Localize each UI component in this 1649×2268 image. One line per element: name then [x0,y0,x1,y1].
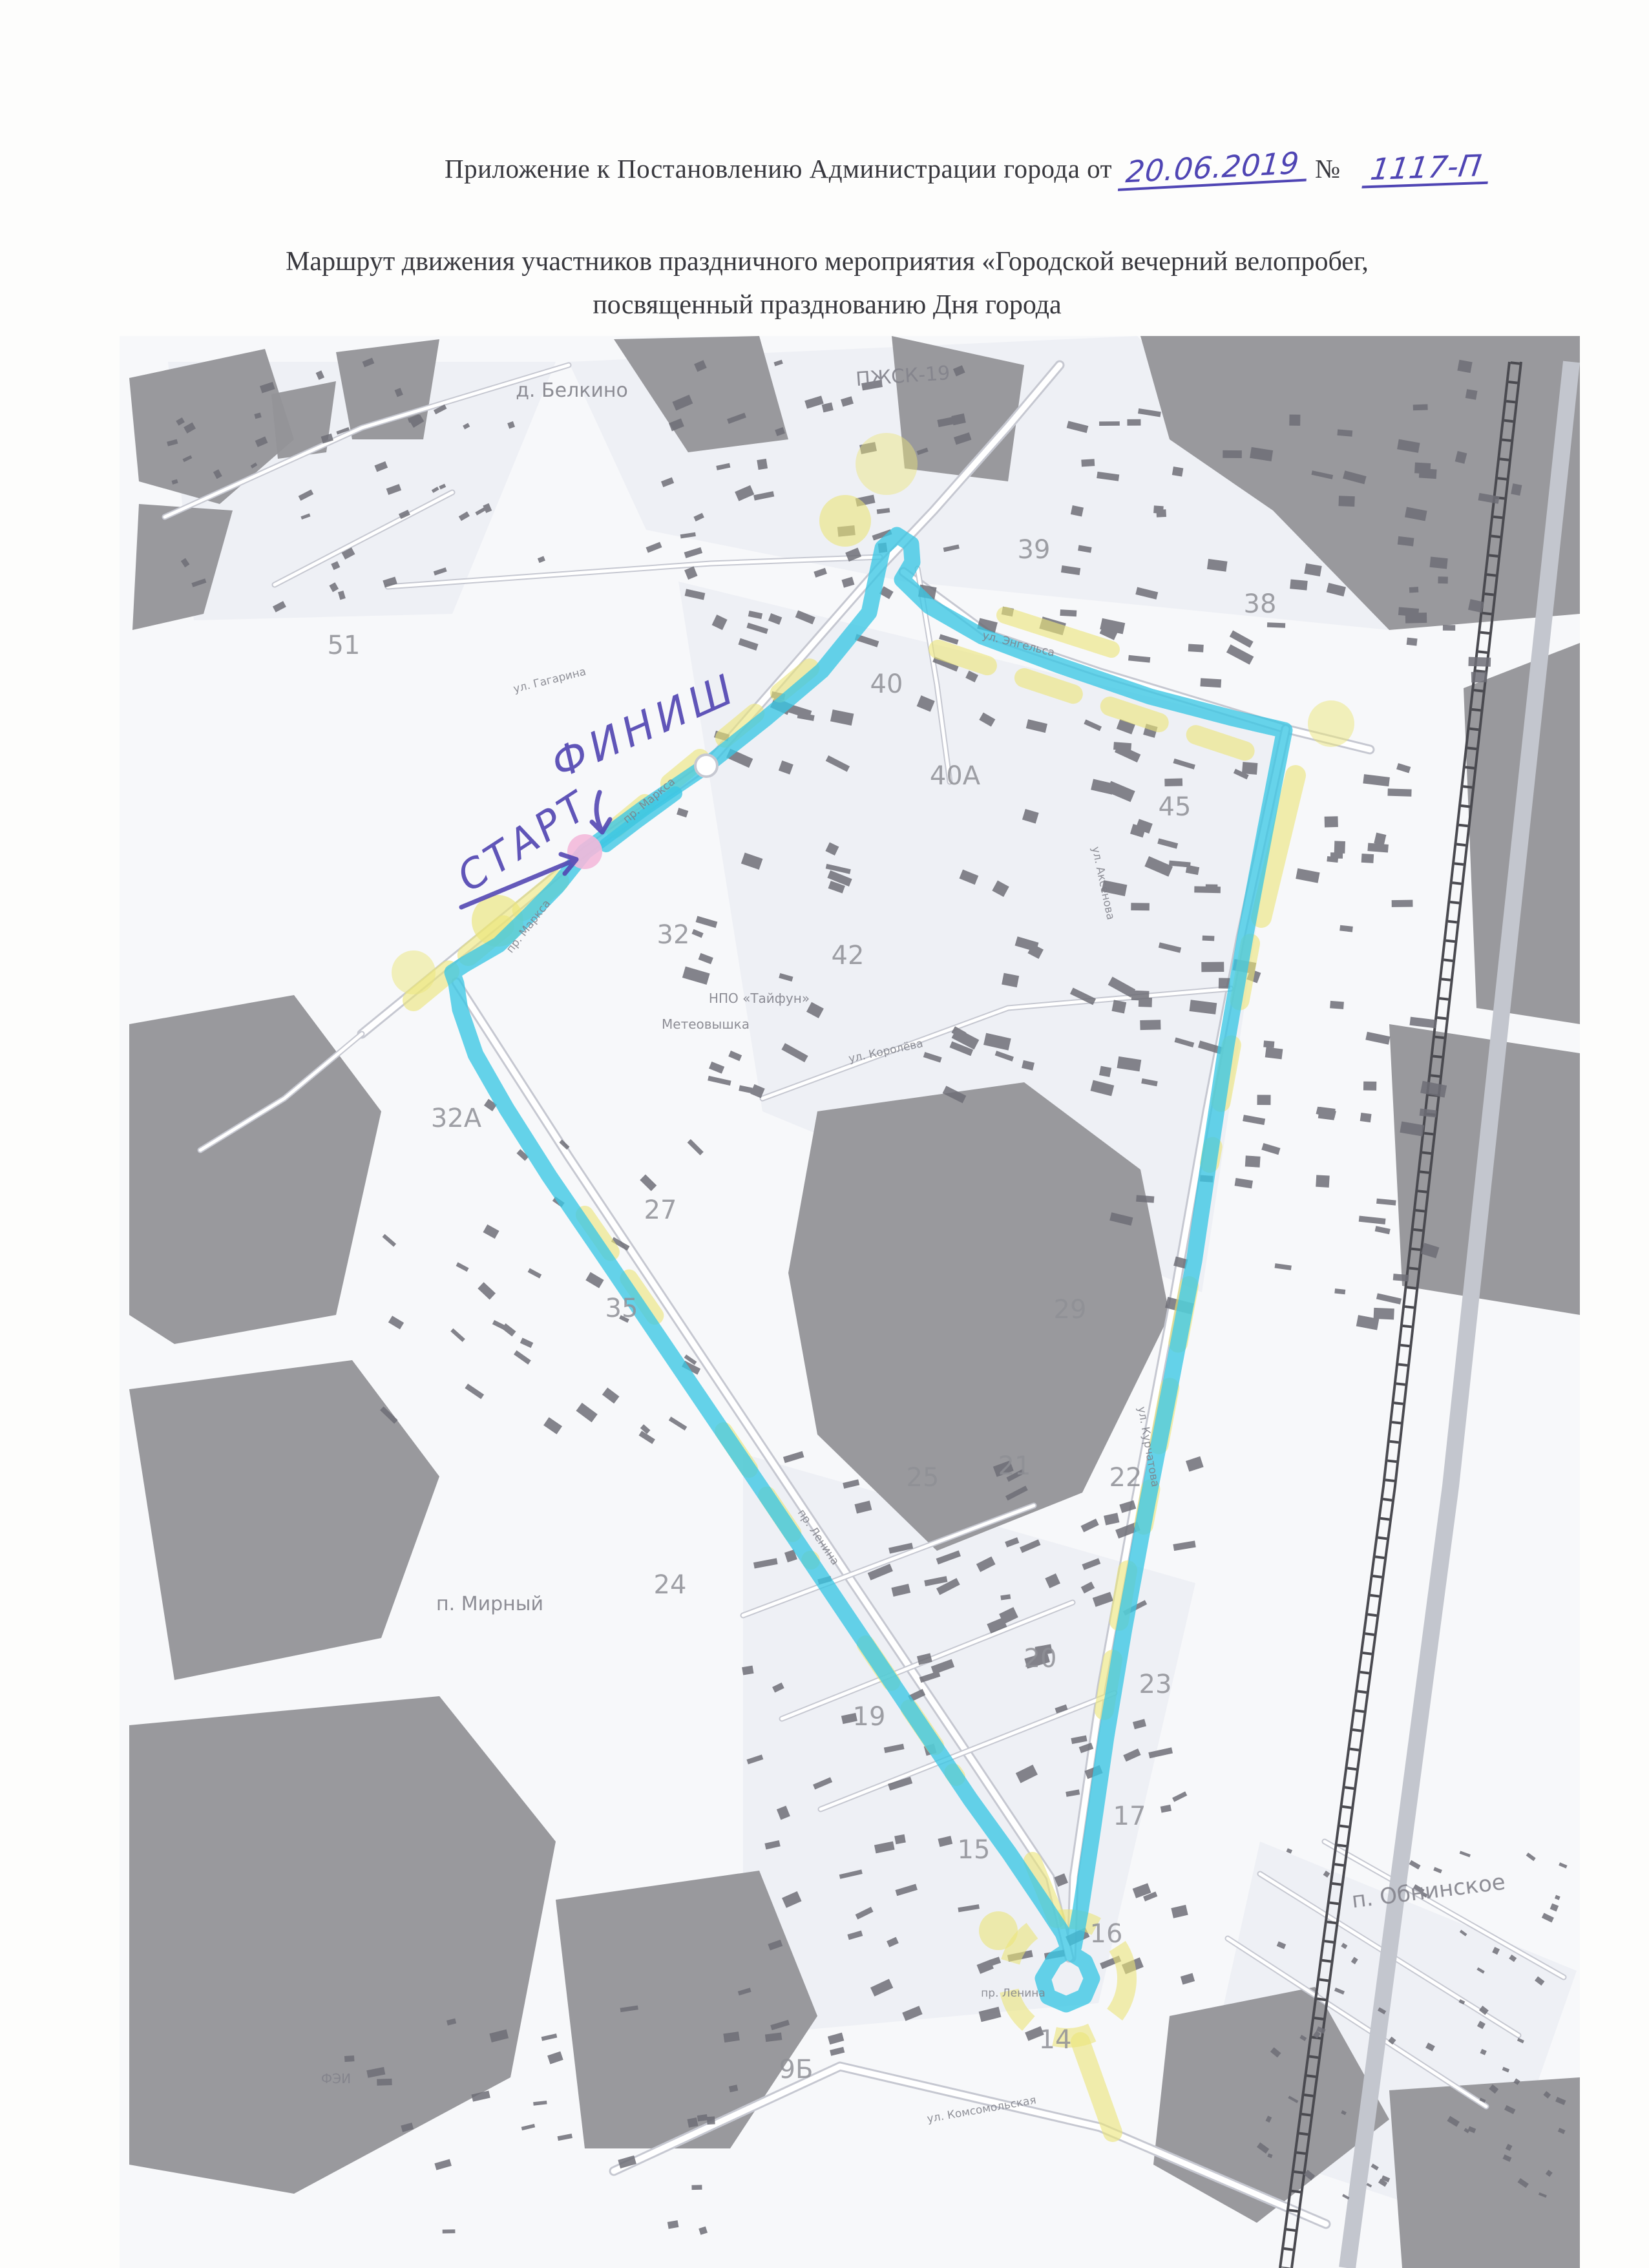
building [1206,885,1218,892]
building [344,2055,355,2062]
building [1127,419,1140,426]
building [1201,962,1224,972]
number-sign: № [1315,154,1341,184]
district-number: 29 [1054,1295,1087,1325]
building [1263,1040,1274,1048]
building [1330,1001,1344,1009]
district-number: 40А [930,761,981,791]
district-number: 19 [853,1702,886,1732]
building [1188,644,1204,652]
district-number: 25 [907,1463,940,1493]
building [1257,1095,1271,1105]
building [1200,678,1221,688]
document-title: Маршрут движения участников праздничного… [207,240,1447,327]
highlight-blob [856,433,918,495]
district-number: 14 [1039,2025,1072,2055]
building [1111,1000,1126,1013]
building [443,2229,456,2233]
district-number: 16 [1090,1919,1123,1949]
district-number: 21 [998,1451,1031,1481]
building [1392,900,1413,907]
building [1361,854,1374,863]
building [1367,843,1389,852]
building [1136,1195,1154,1202]
header-prefix-text: Приложение к Постановлению Администрации… [445,154,1112,184]
building [1325,816,1338,827]
building [691,2185,702,2190]
settlement-label: п. Мирный [436,1593,543,1615]
handwritten-number: 1117-П [1362,150,1493,188]
highlight-blob [392,950,436,994]
building [1131,903,1150,910]
district-number: 23 [1139,1670,1172,1699]
building [1290,579,1308,590]
highlight-blob [979,1911,1018,1950]
building [1393,1274,1409,1281]
scanned-document-page: Приложение к Постановлению Администрации… [0,0,1649,2268]
building [1245,1155,1261,1167]
building [1318,1107,1336,1120]
city-map-svg: д. БелкиноПЖСК-19п. Обнинскоеп. МирныйМе… [120,336,1580,2268]
title-line-1: Маршрут движения участников праздничного… [286,247,1369,277]
district-number: 40 [870,669,903,699]
route-map: д. БелкиноПЖСК-19п. Обнинскоеп. МирныйМе… [120,336,1580,2268]
building [1156,509,1166,517]
highlight-blob [1308,700,1354,747]
building [1099,421,1120,426]
district-number: 15 [958,1835,991,1865]
settlement-label: НПО «Тайфун» [709,991,810,1006]
building [1131,991,1150,1001]
building [1140,1020,1161,1030]
building [707,2116,715,2125]
building [1223,450,1242,458]
document-header: Приложение к Постановлению Администрации… [445,152,1491,186]
district-number: 17 [1113,1801,1146,1831]
building [1409,587,1419,593]
building [1471,671,1487,682]
district-number: 38 [1244,589,1277,619]
district-number: 32А [431,1104,482,1133]
building [1242,762,1257,775]
title-line-2: посвященный празднованию Дня города [593,290,1061,320]
building [1164,779,1182,787]
building [1337,429,1352,436]
building [1316,1175,1330,1188]
building [1413,404,1428,410]
building [1113,742,1131,751]
forest-area [336,339,439,439]
building [1265,1047,1283,1060]
settlement-label: Метеовышка [662,1016,750,1032]
building [757,459,768,470]
building [1219,978,1230,989]
settlement-label: д. Белкино [516,379,628,402]
building [1172,467,1184,477]
district-number: 22 [1109,1463,1142,1493]
building [1267,622,1285,627]
building [377,2079,392,2086]
building [1405,613,1427,624]
building [1407,638,1418,646]
settlement-label: ФЭИ [321,2071,351,2086]
district-number: 35 [605,1294,638,1323]
building [688,2117,698,2128]
district-number: 32 [657,920,690,950]
district-number: 9Б [779,2055,814,2084]
district-number: 20 [1024,1644,1057,1674]
district-number: 24 [654,1570,687,1600]
building [1414,463,1431,474]
handwritten-date: 20.06.2019 [1118,147,1310,191]
building [1203,936,1215,941]
street-label: пр. Ленина [981,1987,1045,2000]
forest-area [271,381,336,459]
building [1443,625,1455,631]
building [1338,496,1354,507]
district-number: 42 [832,941,865,971]
district-number: 45 [1159,792,1192,822]
district-number: 39 [1018,535,1051,565]
building [1387,788,1411,796]
roundabout [695,755,717,777]
building [1468,657,1491,667]
building [1438,576,1448,583]
building [1363,1082,1376,1091]
building [1060,609,1077,616]
building [1289,415,1300,426]
district-number: 51 [328,631,361,660]
district-number: 27 [644,1195,677,1225]
building [1430,557,1448,569]
building [1081,459,1095,467]
building [1360,1113,1372,1122]
building [1334,841,1345,854]
building [1374,1308,1394,1319]
highlight-blob [819,495,871,547]
building [1465,389,1478,400]
